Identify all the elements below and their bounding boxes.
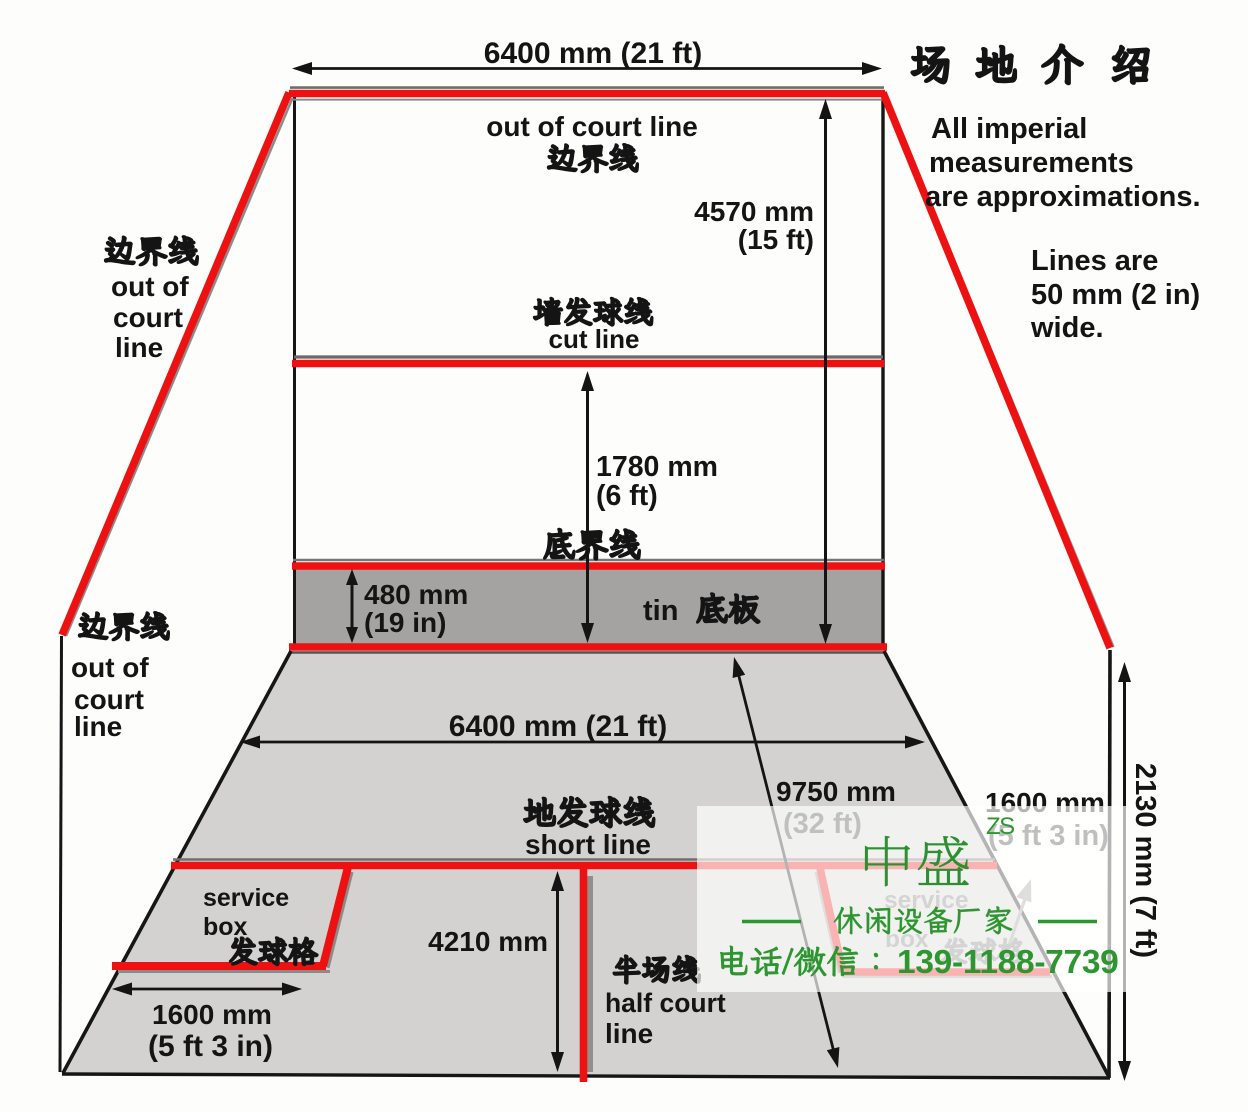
svg-text:tin: tin <box>643 595 678 627</box>
svg-text:1780 mm: 1780 mm <box>596 451 718 483</box>
svg-text:are approximations.: are approximations. <box>925 181 1201 213</box>
svg-text:6400 mm (21 ft): 6400 mm (21 ft) <box>484 37 702 70</box>
svg-text:wide.: wide. <box>1030 312 1104 344</box>
svg-text:line: line <box>605 1018 653 1049</box>
svg-text:cut line: cut line <box>548 324 639 354</box>
svg-text:measurements: measurements <box>929 147 1134 179</box>
svg-text:line: line <box>74 711 122 742</box>
svg-text:(19 in): (19 in) <box>364 607 446 638</box>
svg-text:9750 mm: 9750 mm <box>776 776 896 807</box>
svg-text:line: line <box>115 332 163 363</box>
svg-text:4570 mm: 4570 mm <box>694 196 814 227</box>
svg-text:All imperial: All imperial <box>931 113 1087 145</box>
svg-text:50 mm (2 in): 50 mm (2 in) <box>1031 279 1200 311</box>
svg-text:2130 mm (7 ft): 2130 mm (7 ft) <box>1129 763 1161 958</box>
svg-text:ZS: ZS <box>986 813 1014 840</box>
svg-text:court: court <box>113 302 183 333</box>
svg-text:service: service <box>203 884 289 912</box>
svg-text:139-1188-7739: 139-1188-7739 <box>897 944 1119 981</box>
svg-text:1600 mm: 1600 mm <box>152 999 272 1030</box>
svg-text:out of court line: out of court line <box>486 111 698 142</box>
svg-text:480 mm: 480 mm <box>364 579 468 610</box>
svg-text:(5 ft 3 in): (5 ft 3 in) <box>148 1030 273 1063</box>
svg-text:out of: out of <box>111 271 189 302</box>
svg-text:half court: half court <box>605 988 726 1018</box>
svg-text:4210 mm: 4210 mm <box>428 926 548 957</box>
svg-text:(15 ft): (15 ft) <box>738 224 814 255</box>
svg-text:Lines are: Lines are <box>1031 245 1158 277</box>
svg-text:short line: short line <box>525 829 651 860</box>
svg-text:out of: out of <box>71 652 149 683</box>
svg-text:(6 ft): (6 ft) <box>596 480 658 512</box>
svg-text:6400 mm (21 ft): 6400 mm (21 ft) <box>449 710 667 743</box>
